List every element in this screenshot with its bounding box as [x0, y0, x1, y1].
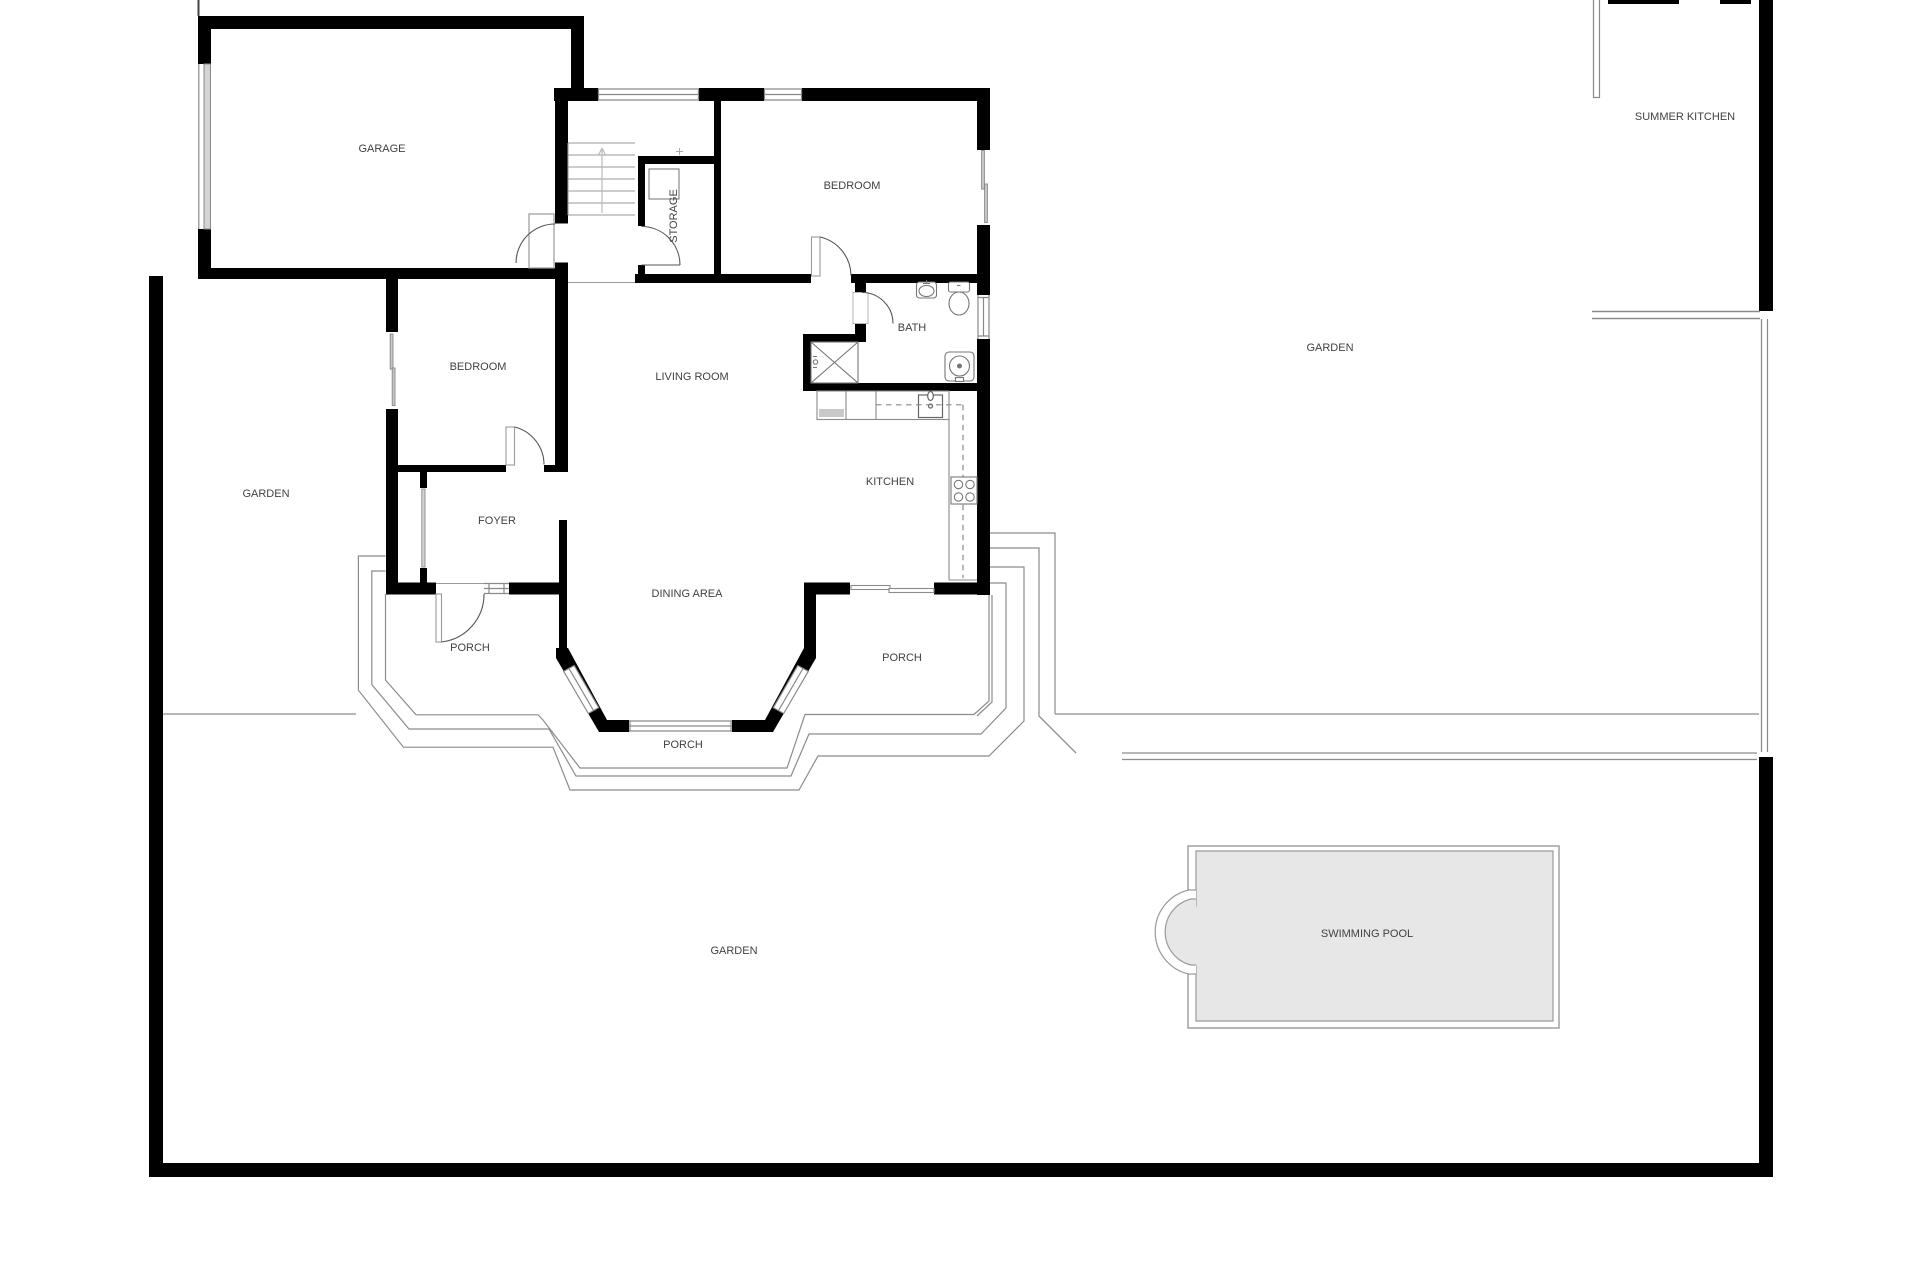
- svg-text:DINING AREA: DINING AREA: [652, 588, 724, 600]
- svg-text:GARDEN: GARDEN: [1306, 342, 1353, 354]
- svg-text:KITCHEN: KITCHEN: [866, 476, 914, 488]
- svg-text:SWIMMING POOL: SWIMMING POOL: [1321, 928, 1413, 940]
- svg-text:GARDEN: GARDEN: [710, 945, 757, 957]
- svg-text:SUMMER KITCHEN: SUMMER KITCHEN: [1635, 111, 1735, 123]
- svg-text:FOYER: FOYER: [478, 515, 516, 527]
- svg-text:GARDEN: GARDEN: [242, 488, 289, 500]
- svg-text:LIVING ROOM: LIVING ROOM: [655, 371, 728, 383]
- svg-text:PORCH: PORCH: [663, 739, 703, 751]
- svg-text:GARAGE: GARAGE: [358, 143, 405, 155]
- svg-text:BATH: BATH: [898, 322, 927, 334]
- svg-text:PORCH: PORCH: [450, 642, 490, 654]
- svg-text:PORCH: PORCH: [882, 652, 922, 664]
- svg-text:BEDROOM: BEDROOM: [824, 180, 881, 192]
- svg-text:STORAGE: STORAGE: [668, 189, 680, 243]
- svg-text:BEDROOM: BEDROOM: [450, 361, 507, 373]
